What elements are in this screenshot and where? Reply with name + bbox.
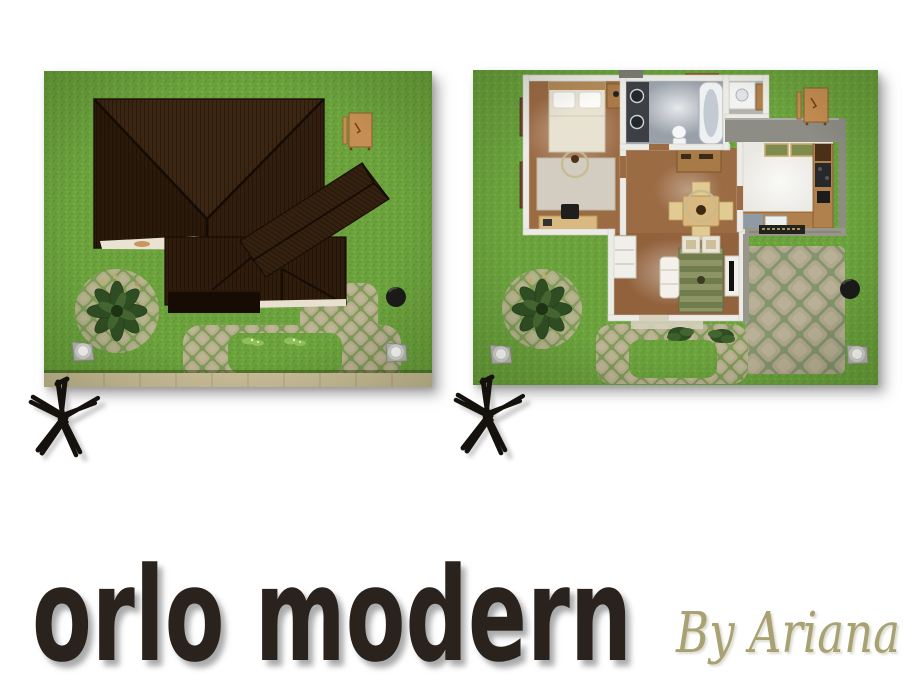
asterisk-scribble-icon (447, 370, 537, 462)
lot-title: orlo modern (28, 546, 673, 686)
asterisk-scribble-icon (22, 372, 112, 464)
floorplan-view-photo (473, 70, 878, 385)
floorplan-scene (473, 70, 878, 385)
roof-view-scene (44, 71, 432, 387)
lot-promo-image: orlo modern By Ariana (0, 0, 920, 690)
author-credit: By Ariana (672, 582, 914, 678)
author-credit-text: By Ariana (675, 601, 900, 666)
lot-title-text: orlo modern (32, 546, 632, 686)
roof-view-photo (44, 71, 432, 387)
